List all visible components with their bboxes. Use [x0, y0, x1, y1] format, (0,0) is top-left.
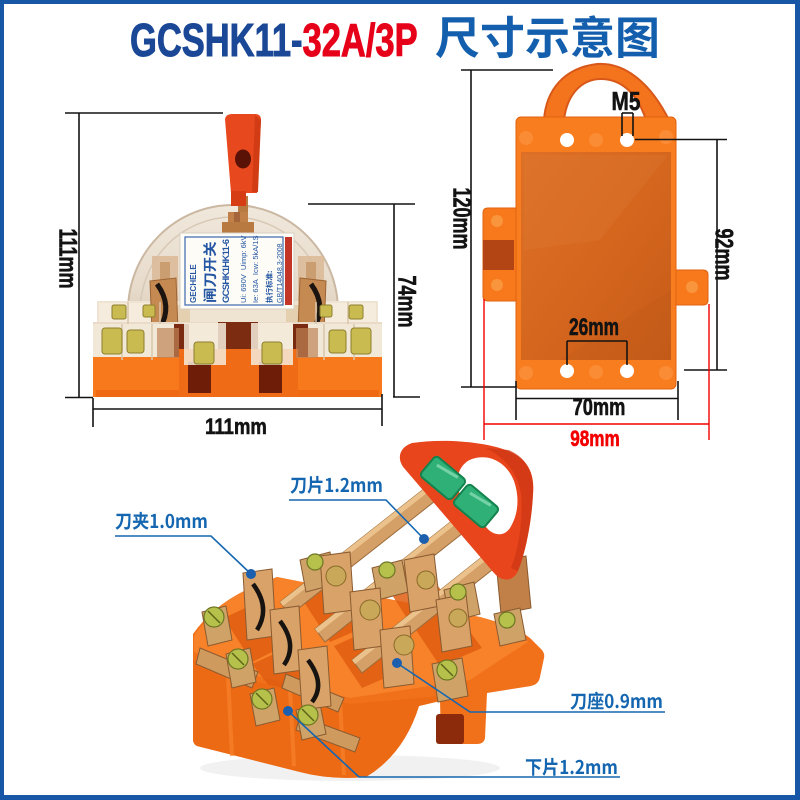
svg-text:GECHELE: GECHELE — [189, 264, 198, 303]
svg-text:GCSHK1HK11-6: GCSHK1HK11-6 — [221, 239, 232, 303]
svg-text:GB/T14048.3-2008: GB/T14048.3-2008 — [277, 243, 284, 303]
svg-text:Ui: 690V Uimp: 6kV: Ui: 690V Uimp: 6kV — [239, 235, 248, 303]
svg-text:Ie: 63A Icw: 5kA/1S: Ie: 63A Icw: 5kA/1S — [251, 235, 260, 303]
